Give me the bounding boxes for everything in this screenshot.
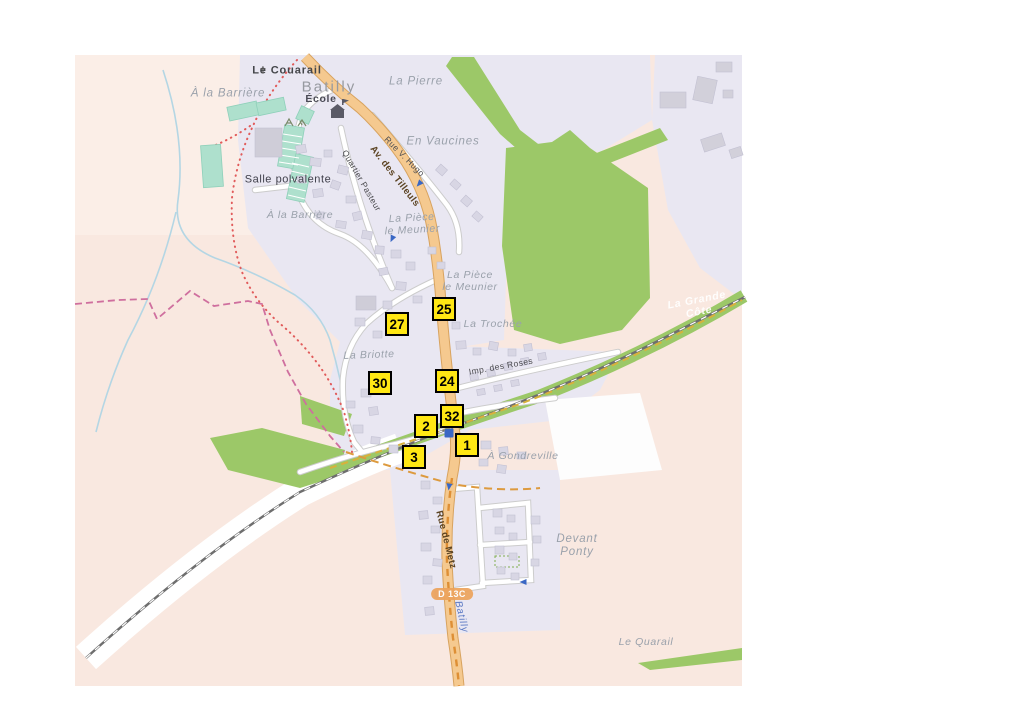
building [346, 196, 356, 203]
building [423, 576, 432, 584]
building [419, 511, 429, 520]
building [456, 341, 467, 350]
map-marker-30[interactable]: 30 [368, 371, 392, 395]
building [353, 425, 363, 433]
building [723, 90, 733, 98]
map-marker-25[interactable]: 25 [432, 297, 456, 321]
oneway-arrow-icon [446, 483, 453, 491]
building [469, 372, 478, 380]
building [473, 348, 481, 355]
building [437, 262, 445, 269]
building [312, 188, 323, 197]
building [316, 212, 324, 219]
building [508, 349, 516, 356]
building [431, 526, 440, 533]
building [356, 296, 376, 310]
building [531, 516, 540, 524]
building [255, 128, 282, 157]
building [425, 607, 435, 616]
building [488, 341, 498, 350]
building [368, 406, 378, 415]
building [499, 447, 509, 456]
building [503, 362, 512, 370]
building [495, 527, 504, 534]
building [396, 282, 407, 291]
building [375, 246, 385, 255]
building [352, 211, 363, 221]
oneway-arrow-icon [520, 579, 527, 585]
building [378, 267, 388, 275]
map-marker-24[interactable]: 24 [435, 369, 459, 393]
parking-icon [445, 429, 454, 438]
building [511, 573, 519, 580]
building [355, 318, 365, 326]
building [310, 157, 322, 166]
building [537, 352, 546, 360]
map-marker-27[interactable]: 27 [385, 312, 409, 336]
building [479, 459, 488, 466]
building [361, 230, 372, 240]
building [428, 247, 436, 254]
building [413, 296, 422, 303]
building [391, 250, 401, 258]
building [507, 515, 515, 522]
building [389, 445, 398, 453]
map-marker-3[interactable]: 3 [402, 445, 426, 469]
building [346, 401, 355, 408]
building [433, 497, 442, 504]
map-marker-1[interactable]: 1 [455, 433, 479, 457]
building [295, 144, 306, 154]
building [383, 301, 392, 309]
wayside-cross-icon: ✝ [259, 66, 267, 77]
building [297, 176, 306, 183]
building [481, 441, 491, 449]
building [533, 536, 541, 543]
map-canvas [0, 0, 1024, 724]
building [520, 357, 529, 365]
building [511, 379, 520, 386]
building [493, 509, 502, 517]
building [421, 481, 430, 489]
building [477, 388, 486, 395]
building [517, 452, 526, 459]
building [524, 343, 533, 351]
building [494, 384, 503, 391]
building [509, 553, 517, 560]
building [433, 559, 443, 567]
building [336, 220, 347, 228]
building [531, 559, 539, 566]
building [716, 62, 732, 72]
road-ref-shield: D 13C [431, 588, 473, 600]
scanned-map-page: À la BarrièreLa PierreEn VaucinesÀ la Ba… [0, 0, 1024, 724]
building [452, 322, 460, 329]
building [660, 92, 686, 108]
building [373, 331, 382, 338]
building [371, 437, 381, 445]
building [486, 368, 495, 376]
building [496, 464, 506, 473]
building [421, 543, 431, 551]
building [406, 262, 415, 270]
building [495, 546, 504, 554]
building [497, 567, 505, 574]
building [509, 533, 517, 540]
map-marker-2[interactable]: 2 [414, 414, 438, 438]
map-marker-32[interactable]: 32 [440, 404, 464, 428]
building [324, 150, 332, 157]
